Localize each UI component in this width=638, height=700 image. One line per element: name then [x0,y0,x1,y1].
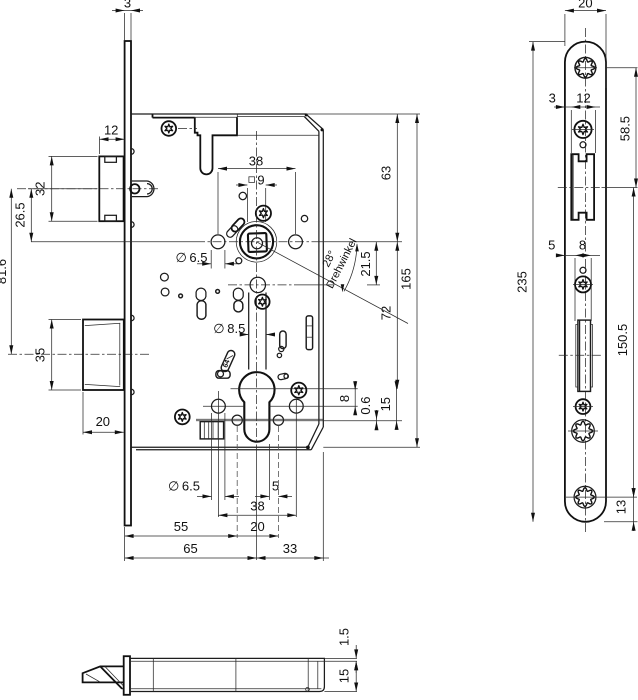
svg-text:20: 20 [578,0,592,11]
svg-text:235: 235 [515,271,530,293]
svg-text:72: 72 [379,306,394,320]
svg-text:81.6: 81.6 [0,259,9,284]
svg-text:20: 20 [250,519,264,534]
svg-text:33: 33 [283,541,297,556]
svg-text:3: 3 [549,91,556,106]
svg-text:20: 20 [96,414,110,429]
svg-text:12: 12 [104,123,118,138]
svg-text:0.6: 0.6 [358,397,373,415]
svg-text:∅ 6.5: ∅ 6.5 [176,250,208,265]
svg-text:58.5: 58.5 [617,116,632,141]
svg-text:8: 8 [579,237,586,252]
svg-text:5: 5 [548,237,555,252]
svg-text:∅ 8.5: ∅ 8.5 [213,321,245,336]
svg-text:165: 165 [399,268,414,290]
svg-text:15: 15 [378,397,393,411]
svg-text:21.5: 21.5 [358,251,373,276]
svg-text:13: 13 [614,500,629,514]
svg-text:8: 8 [337,395,352,402]
svg-text:35: 35 [33,348,48,362]
svg-text:63: 63 [379,166,394,180]
svg-text:3: 3 [124,0,131,11]
svg-text:∅ 6.5: ∅ 6.5 [168,479,200,494]
svg-text:26.5: 26.5 [13,202,28,227]
svg-text:65: 65 [183,541,197,556]
svg-text:1.5: 1.5 [337,628,352,646]
svg-text:55: 55 [174,519,188,534]
svg-text:9: 9 [257,172,264,187]
svg-text:12: 12 [576,91,590,106]
svg-text:150.5: 150.5 [615,324,630,357]
svg-text:15: 15 [337,669,352,683]
svg-text:38: 38 [250,499,264,514]
svg-text:38: 38 [249,153,263,168]
